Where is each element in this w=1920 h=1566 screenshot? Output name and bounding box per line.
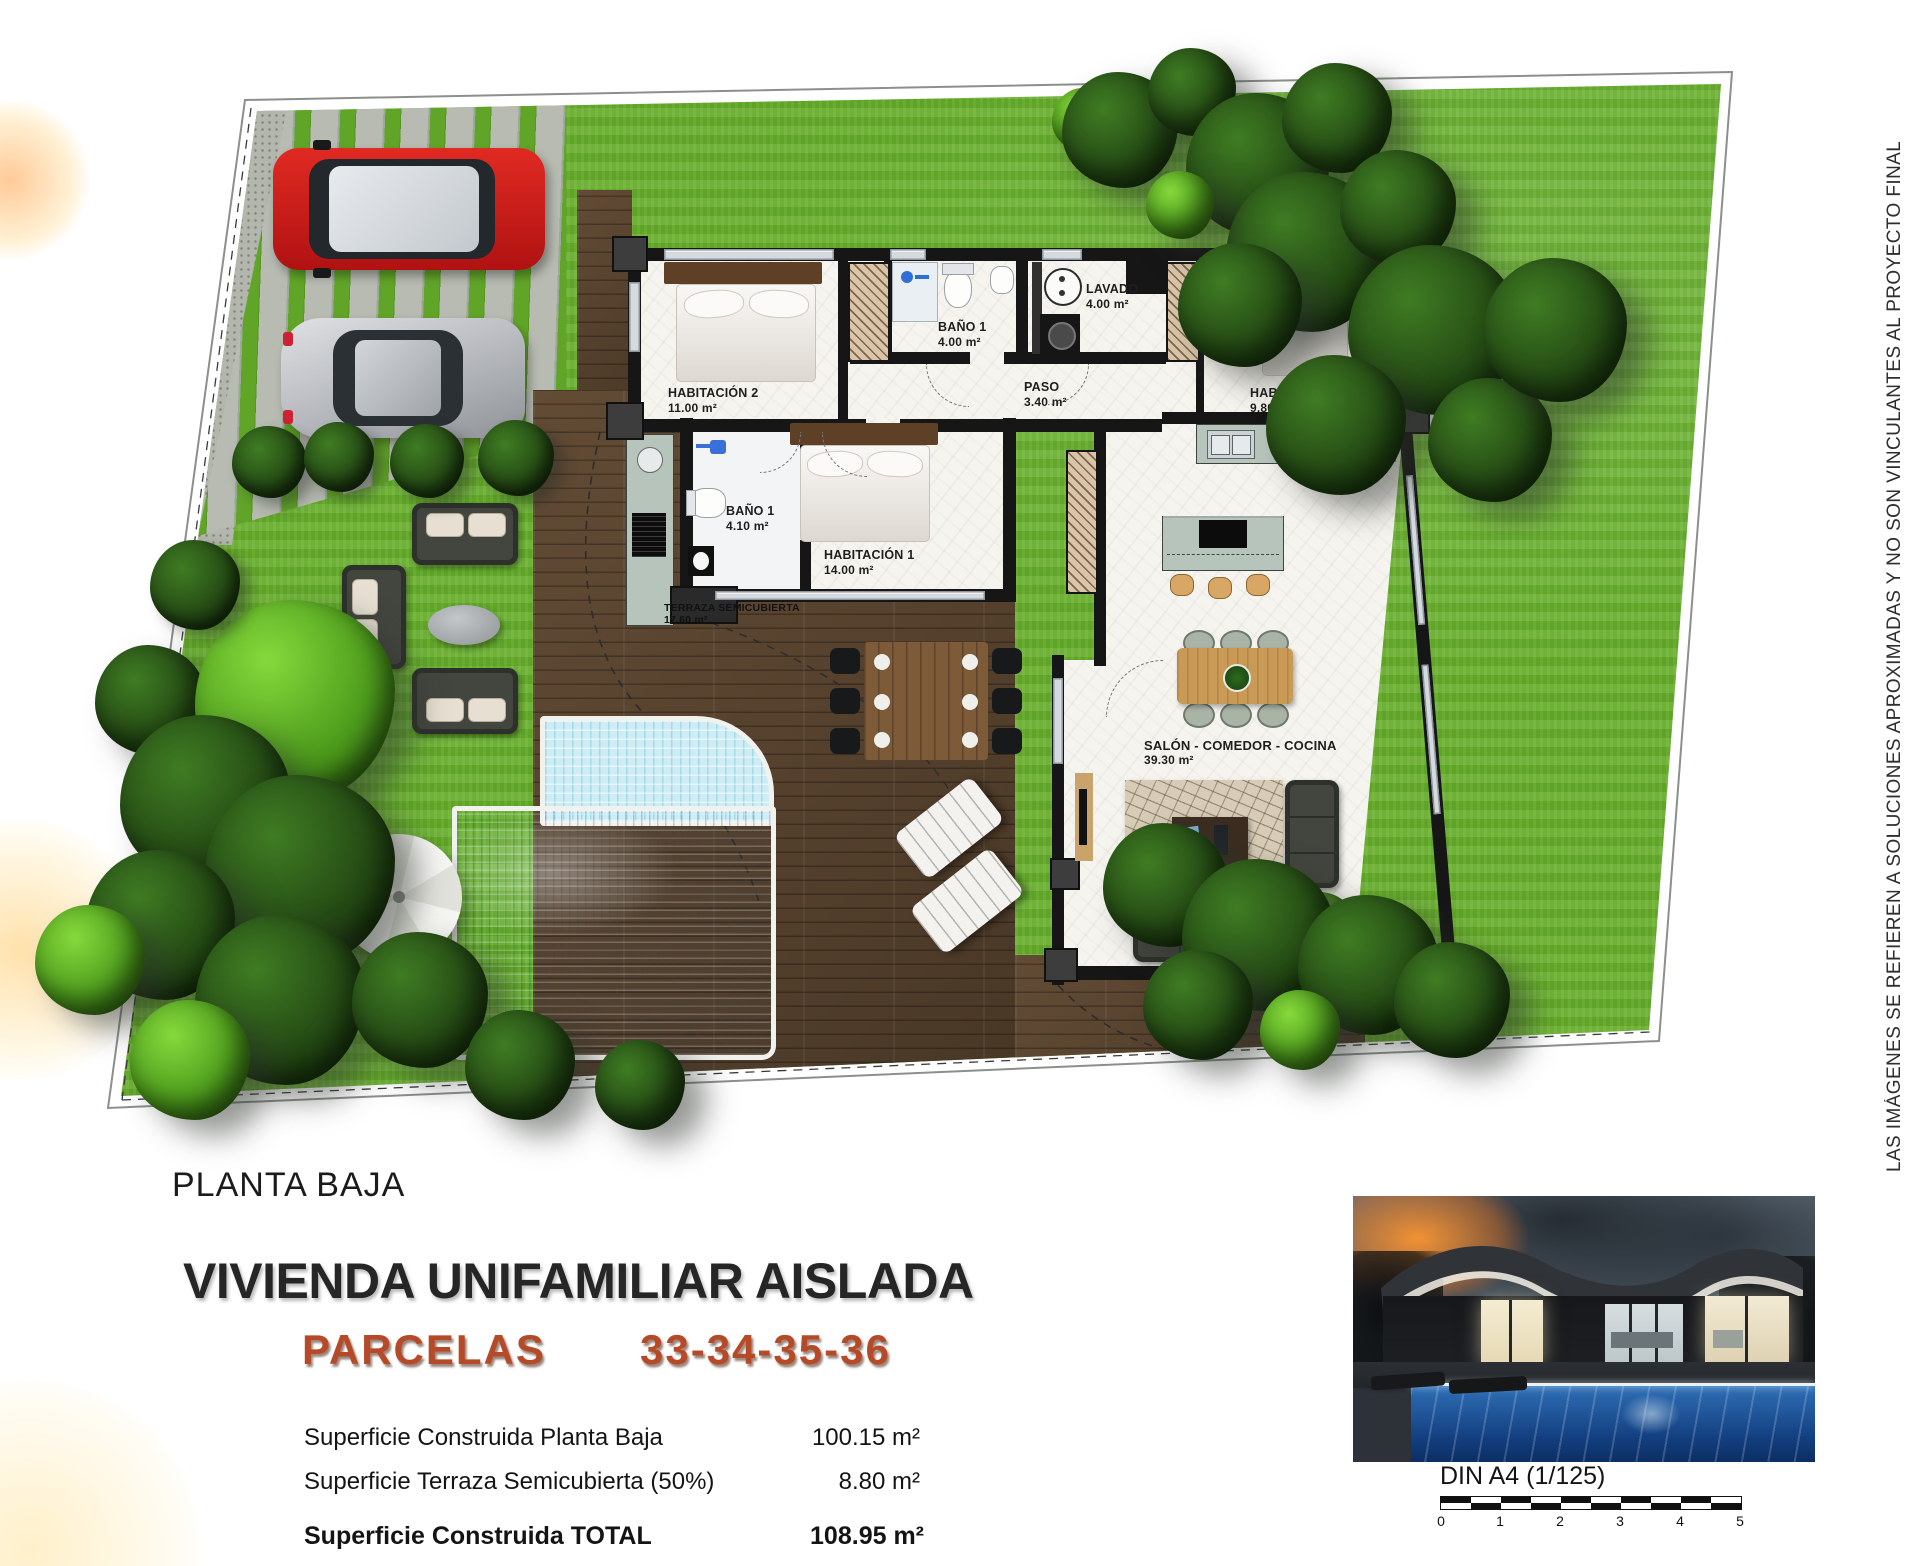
parcels-label: PARCELAS xyxy=(302,1326,546,1374)
stool xyxy=(1170,574,1194,596)
sofa-east xyxy=(1285,780,1339,888)
washing-machine xyxy=(1040,314,1080,354)
pool-night xyxy=(1411,1386,1815,1462)
bed-habitacion3 xyxy=(1256,262,1352,282)
surface-row-total: Superficie Construida TOTAL 108.95 m² xyxy=(304,1522,924,1551)
lit-window xyxy=(1705,1296,1789,1362)
washbasin xyxy=(990,266,1014,294)
kitchen-island xyxy=(1162,516,1284,571)
scale-tick: 3 xyxy=(1616,1513,1624,1529)
room-label-lavado: LAVADO 4.00 m² xyxy=(1086,282,1138,311)
window xyxy=(664,249,834,260)
tv-unit xyxy=(1075,773,1093,861)
window xyxy=(890,249,926,260)
wardrobe xyxy=(1066,450,1098,594)
lit-window xyxy=(1481,1300,1543,1364)
room-label-paso: PASO 3.40 m² xyxy=(1024,380,1067,409)
tree xyxy=(35,905,145,1015)
scale-tick: 1 xyxy=(1496,1513,1504,1529)
wardrobe xyxy=(1404,262,1446,358)
room-label-salon: SALÓN - COMEDOR - COCINA 39.30 m² xyxy=(1144,738,1337,767)
window xyxy=(1178,968,1332,977)
side-disclaimer: LAS IMÁGENES SE REFIEREN A SOLUCIONES AP… xyxy=(1884,92,1906,1172)
window xyxy=(1252,249,1354,260)
surface-row: Superficie Terraza Semicubierta (50%) 8.… xyxy=(304,1468,920,1496)
window xyxy=(715,591,985,600)
window xyxy=(629,282,640,352)
wardrobe xyxy=(1166,262,1200,362)
coffee-table xyxy=(1172,817,1248,869)
scale-bar xyxy=(1440,1496,1742,1510)
scale-tick: 2 xyxy=(1556,1513,1564,1529)
room-label-terraza: TERRAZA SEMICUBIERTA 17.60 m² xyxy=(664,602,800,627)
floor-label: PLANTA BAJA xyxy=(172,1166,405,1205)
page: HABITACIÓN 2 11.00 m² BAÑO 1 4.00 m² LAV… xyxy=(0,0,1920,1566)
dining-table xyxy=(1177,648,1293,704)
room-label-habitacion2: HABITACIÓN 2 11.00 m² xyxy=(668,386,758,415)
bed-habitacion2 xyxy=(664,262,822,284)
stool xyxy=(1246,574,1270,596)
stool xyxy=(1208,577,1232,599)
room-label-bano1: BAÑO 1 4.00 m² xyxy=(938,320,986,349)
washbasin xyxy=(688,546,714,576)
sofa-south xyxy=(1133,900,1278,962)
cooktop xyxy=(1199,520,1247,548)
room-label-bano1b: BAÑO 1 4.10 m² xyxy=(726,504,774,533)
room-label-habitacion3: HABITACIÓN 3 9.80 m² xyxy=(1250,386,1340,415)
wardrobe xyxy=(848,262,890,362)
window xyxy=(1042,249,1082,260)
scale-label: DIN A4 (1/125) xyxy=(1440,1462,1605,1491)
scale-tick: 4 xyxy=(1676,1513,1684,1529)
surface-row: Superficie Construida Planta Baja 100.15… xyxy=(304,1424,920,1452)
toilet xyxy=(944,270,972,308)
villa-render-photo xyxy=(1353,1196,1815,1462)
scale-tick: 5 xyxy=(1736,1513,1744,1529)
kitchen-sink xyxy=(1207,430,1255,459)
sun-glow-middle xyxy=(0,820,150,1080)
laundry-sink xyxy=(1044,268,1082,306)
page-title: VIVIENDA UNIFAMILIAR AISLADA xyxy=(183,1252,974,1310)
window xyxy=(1053,678,1063,764)
shower xyxy=(892,262,938,322)
kitchen-counter xyxy=(1196,424,1346,464)
parcels-numbers: 33-34-35-36 xyxy=(640,1326,891,1374)
indoor-plant xyxy=(1288,892,1354,956)
sun-glow-corner xyxy=(0,1380,200,1566)
sun-glow-top xyxy=(0,100,90,260)
lit-window xyxy=(1605,1304,1683,1362)
scale-tick: 0 xyxy=(1437,1513,1445,1529)
room-label-habitacion1: HABITACIÓN 1 14.00 m² xyxy=(824,548,914,577)
dining-set xyxy=(1160,624,1310,728)
shower-head xyxy=(696,438,726,460)
